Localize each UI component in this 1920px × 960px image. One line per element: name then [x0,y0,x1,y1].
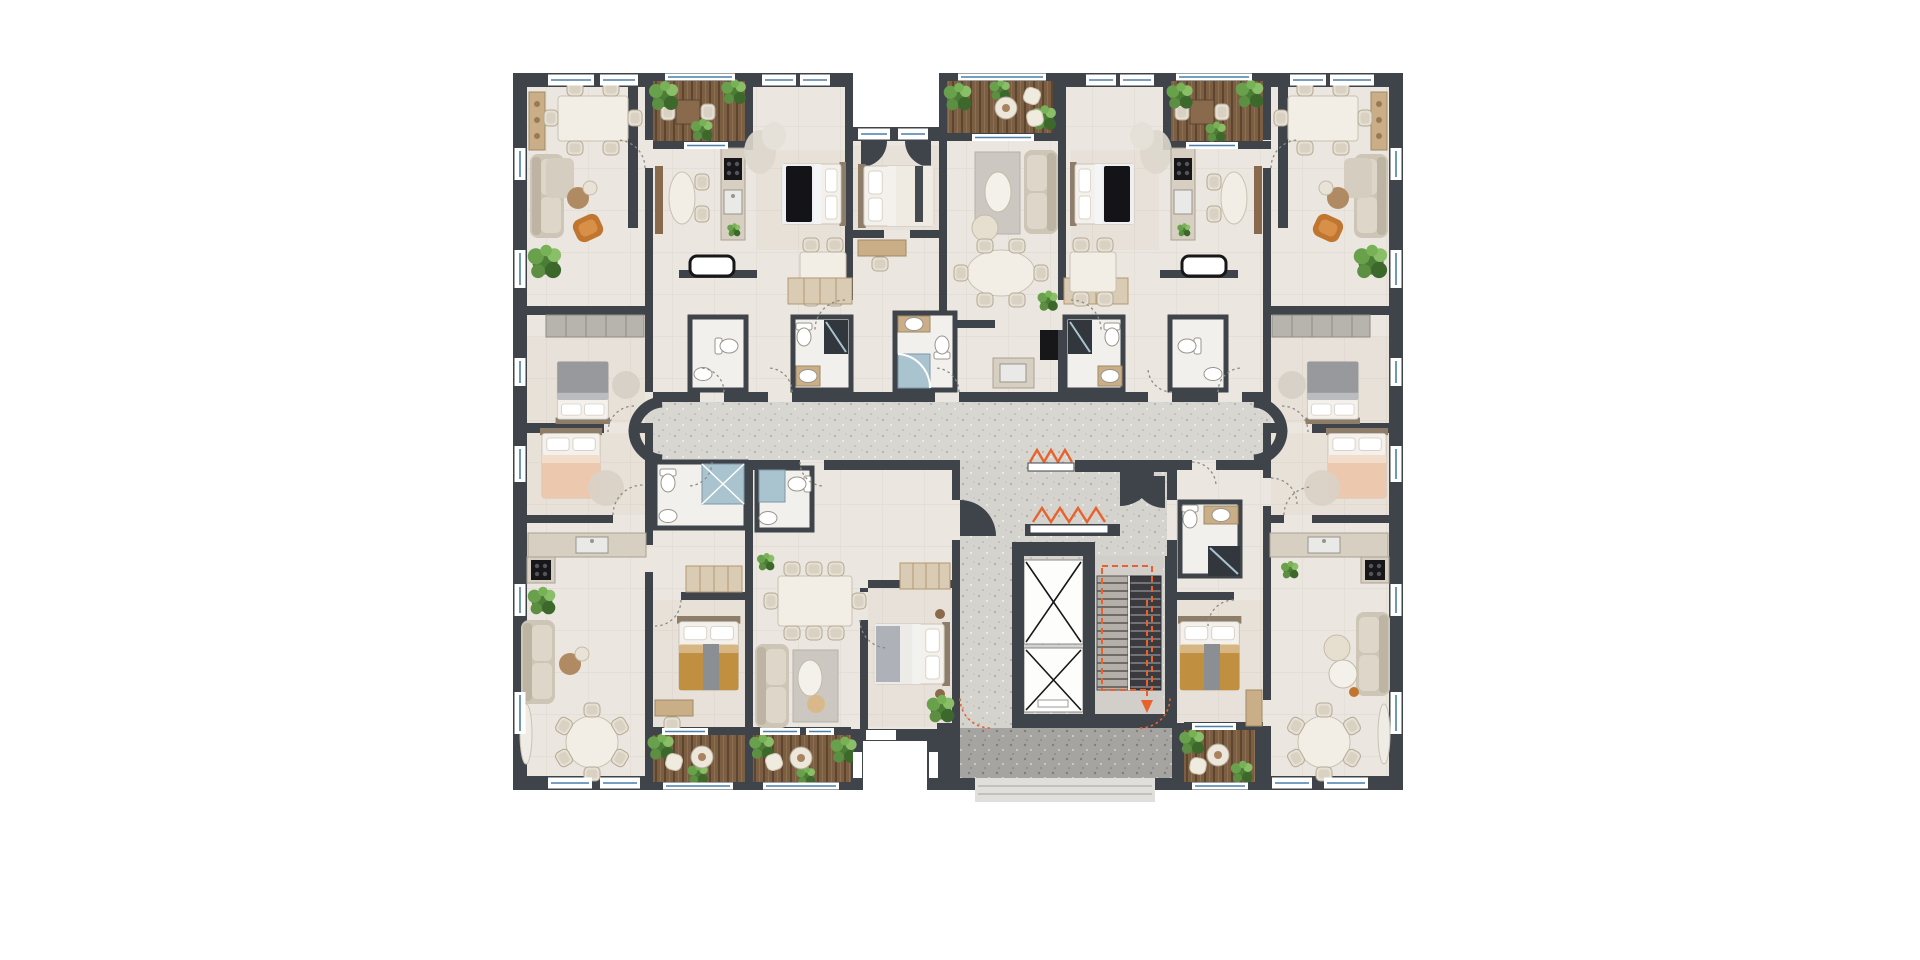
cooktop [1365,560,1385,580]
dining-table [778,576,852,626]
chair [828,562,844,576]
floor-plan-page [0,0,1920,960]
chair [1009,239,1025,253]
plant-icon [1231,761,1253,783]
chair [695,174,709,190]
toilet-icon [1104,323,1120,346]
chair [1207,206,1221,222]
plant-icon [528,245,561,278]
deco-orange [1349,687,1359,697]
bed-icon [1306,362,1360,424]
bed-blanket [876,626,900,682]
wardrobe [546,315,644,337]
cooktop [724,158,742,180]
desk [655,700,693,716]
cooktop [531,560,551,580]
plant-icon [944,83,972,111]
bathroom-pod-5 [1170,317,1226,390]
wardrobe [900,563,950,589]
chair [701,104,715,120]
chair [1358,110,1372,126]
chair [1215,104,1229,120]
chair [1073,238,1089,252]
rug [612,371,640,399]
dining-table [558,96,628,141]
floor-deco [1130,122,1154,150]
kitchen-sink [1000,364,1026,382]
chair [695,206,709,222]
plant-icon [1167,83,1193,109]
elevator-2-detail [1038,700,1068,707]
chair [1207,174,1221,190]
chair [1097,292,1113,306]
bathroom-pod-3 [895,313,955,390]
armchair [972,215,998,241]
balcony-table [691,746,713,768]
plant-icon [1038,291,1058,311]
desk [1246,690,1262,726]
chair [828,626,844,640]
bottom-notch [863,741,927,803]
chair [1274,110,1288,126]
chair [567,141,583,155]
plant-icon [831,737,857,763]
side-table [807,695,825,713]
balcony-table [676,100,700,124]
bed-icon [556,362,610,424]
plant-icon [1236,80,1264,108]
sink-icon [759,512,777,525]
bed-runner [1204,644,1220,690]
chair [544,110,558,126]
kitchen-sink [1174,190,1192,214]
floor-deco [762,122,786,150]
toilet-icon [1182,505,1198,528]
bathroom-pod-2 [793,317,851,390]
chair [977,239,993,253]
balcony-table [995,97,1017,119]
chair [1009,293,1025,307]
armchair [1324,635,1350,661]
chair [1333,141,1349,155]
plant-icon [1179,729,1204,754]
balcony-table [1190,100,1214,124]
chair [872,257,888,271]
toilet-icon [934,336,950,359]
bathroom-pod-1 [690,317,746,390]
plant-icon [1354,245,1387,278]
chair [977,293,993,307]
chair [764,593,778,609]
sofa [521,620,555,704]
rug [1278,371,1306,399]
chair [852,593,866,609]
sofa-chaise [1344,158,1372,198]
chair [827,238,843,252]
dining-table [1070,252,1116,292]
chair [806,626,822,640]
dining-table-round [1298,716,1350,768]
plant-icon [727,223,740,236]
chair [784,562,800,576]
chair [1297,141,1313,155]
cushion [1189,757,1208,776]
bar-counter [690,256,734,276]
rug [588,470,624,506]
chair [1316,703,1332,717]
plant-icon [1206,122,1226,142]
entrance-steps [975,778,1155,802]
console [655,166,663,234]
sink-icon [1101,370,1119,383]
bed-runner [703,644,719,690]
black-duvet [786,166,812,222]
chair [584,703,600,717]
wardrobe [1272,315,1370,337]
chair [803,238,819,252]
bathroom-pod-6 [655,462,746,528]
side-table [1329,660,1357,688]
balcony-table [1207,744,1229,766]
stair-flight-down [1130,576,1161,690]
top-notch [853,60,939,127]
bathroom-pod-4 [1065,317,1123,390]
dining-table [1288,96,1358,141]
oval-table [669,172,695,224]
sink-icon [905,318,923,331]
chair [784,626,800,640]
black-duvet [1104,166,1130,222]
oval-table [1221,172,1247,224]
chair [1034,265,1048,281]
sink-icon [1204,368,1222,381]
bathroom-pod-8 [1180,502,1240,576]
fridge [1040,330,1058,360]
plant-icon [691,119,713,141]
toilet-icon [796,323,812,346]
chair [806,562,822,576]
bathroom-pod-7 [757,468,812,530]
plant-icon [1281,561,1298,578]
floor-plan-svg [0,0,1920,960]
sofa [1024,150,1058,234]
bar-counter [1182,256,1226,276]
bench [1378,704,1390,764]
coffee-table [798,660,822,696]
cooktop [1174,158,1192,180]
bed-bench [915,166,923,222]
console [1254,166,1262,234]
sink-icon [1212,509,1230,522]
plant-icon [757,553,774,570]
plant-icon [721,79,746,104]
chair [603,141,619,155]
stair-divider [1128,576,1130,690]
corridor-texture [645,402,1271,460]
coffee-table [985,172,1011,212]
rug [1304,470,1340,506]
desk [858,240,906,256]
plant-icon [1177,223,1190,236]
sofa [1356,612,1390,696]
dining-table-round [566,716,618,768]
chair [1097,238,1113,252]
toilet-icon [788,476,811,492]
sofa [755,644,789,728]
plant-icon [528,587,556,615]
nightstand [935,609,945,619]
dining-table [967,250,1035,296]
toilet-icon [1178,338,1201,354]
plant-icon [927,695,955,723]
terrace-texture [960,728,1172,778]
balcony-table [790,747,812,769]
toilet-icon [715,338,738,354]
chair [1073,292,1089,306]
toilet-icon [660,469,676,492]
sink-icon [659,510,677,523]
sink-icon [799,370,817,383]
kitchen-sink [724,190,742,214]
chair [954,265,968,281]
plant-icon [649,81,678,110]
chair [628,110,642,126]
